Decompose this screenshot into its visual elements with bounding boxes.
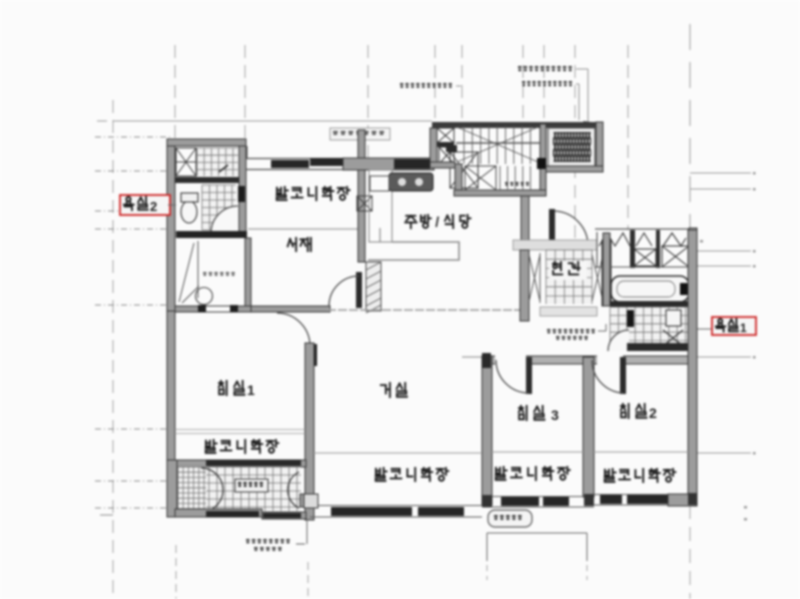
svg-text:3: 3 [551, 407, 559, 423]
svg-text:/: / [435, 214, 439, 230]
svg-text:2: 2 [649, 405, 657, 421]
svg-text:1: 1 [740, 321, 747, 335]
svg-text:1: 1 [247, 382, 255, 398]
svg-text:2: 2 [150, 199, 157, 214]
